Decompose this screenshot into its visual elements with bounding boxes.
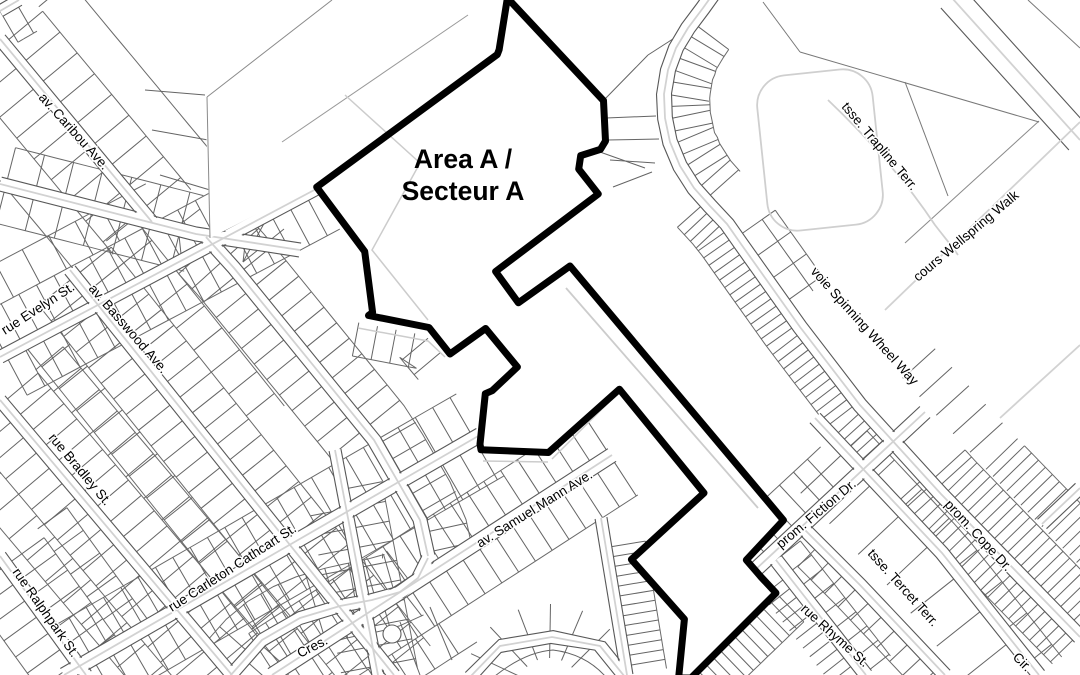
svg-text:Area A /: Area A /	[414, 144, 513, 174]
svg-text:cours Wellspring Walk: cours Wellspring Walk	[910, 187, 1022, 284]
svg-text:tsse. Trapline Terr.: tsse. Trapline Terr.	[839, 99, 921, 193]
svg-text:Secteur A: Secteur A	[402, 176, 525, 206]
svg-text:av. Samuel Mann Ave.: av. Samuel Mann Ave.	[474, 467, 595, 551]
svg-text:rue Rhyme St.: rue Rhyme St.	[798, 601, 872, 670]
svg-text:tsse. Tercet Terr.: tsse. Tercet Terr.	[865, 546, 942, 629]
